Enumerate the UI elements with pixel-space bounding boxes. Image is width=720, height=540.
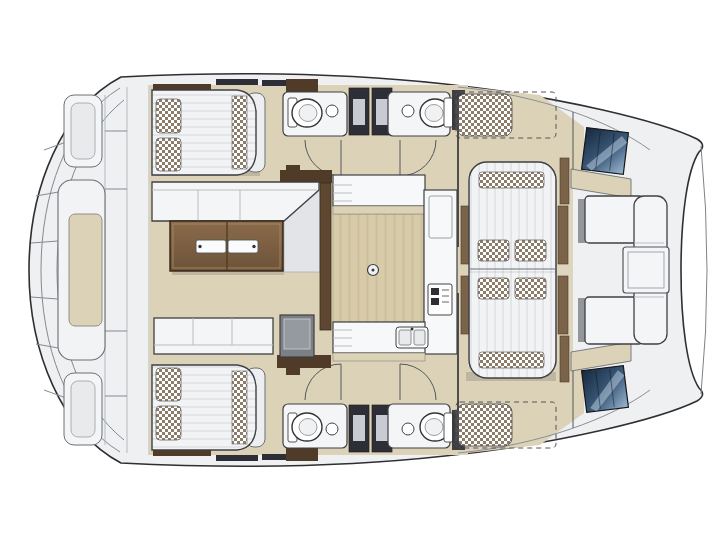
- starboard-swim-step: [64, 373, 102, 445]
- port-swim-step: [64, 95, 102, 167]
- bowsprit-arc: [701, 146, 707, 394]
- wardrobe: [286, 79, 318, 92]
- sheer-window: [216, 455, 258, 461]
- sheer-window: [216, 79, 258, 85]
- aft-sofa: [154, 318, 273, 354]
- toilet-tank: [444, 413, 453, 442]
- pillow: [478, 240, 509, 261]
- bed-foot-runner: [232, 371, 247, 444]
- sheer-window: [262, 80, 286, 86]
- sink: [402, 105, 414, 117]
- sink: [326, 105, 338, 117]
- shelf-trim-top: [280, 170, 332, 183]
- storage-module: [280, 315, 314, 357]
- deck-hatch-port: [582, 128, 629, 175]
- toilet-tank: [444, 98, 453, 127]
- pillow: [156, 406, 181, 440]
- pillow: [478, 278, 509, 299]
- sink: [402, 423, 414, 435]
- wardrobe-divider: [320, 183, 331, 330]
- sink: [326, 423, 338, 435]
- stove: [428, 284, 452, 315]
- wardrobe: [286, 448, 318, 461]
- twin-sunbeds: [469, 162, 556, 378]
- forward-counter: [333, 322, 428, 361]
- catamaran-floorplan-image: [0, 0, 720, 540]
- bed-foot-runner: [232, 96, 247, 169]
- bathroom-starboard-fwd: [388, 404, 453, 448]
- floorplan-canvas: [0, 0, 720, 540]
- bathroom-port-fwd: [388, 92, 453, 136]
- side-counter: [424, 190, 457, 354]
- pillow: [156, 368, 181, 401]
- pillow: [515, 240, 546, 261]
- pillow: [515, 278, 546, 299]
- bathroom-starboard-aft: [283, 404, 347, 448]
- pillow: [156, 99, 181, 133]
- deck-hatch-starboard: [582, 366, 629, 413]
- aft-bench-pod: [58, 180, 105, 360]
- bathroom-port-aft: [283, 92, 347, 136]
- forward-cockpit-table: [623, 247, 669, 293]
- salon: [152, 170, 332, 368]
- double-sink: [396, 327, 428, 348]
- pillow: [156, 138, 181, 171]
- sheer-window: [262, 454, 286, 460]
- aft-counter: [333, 175, 425, 214]
